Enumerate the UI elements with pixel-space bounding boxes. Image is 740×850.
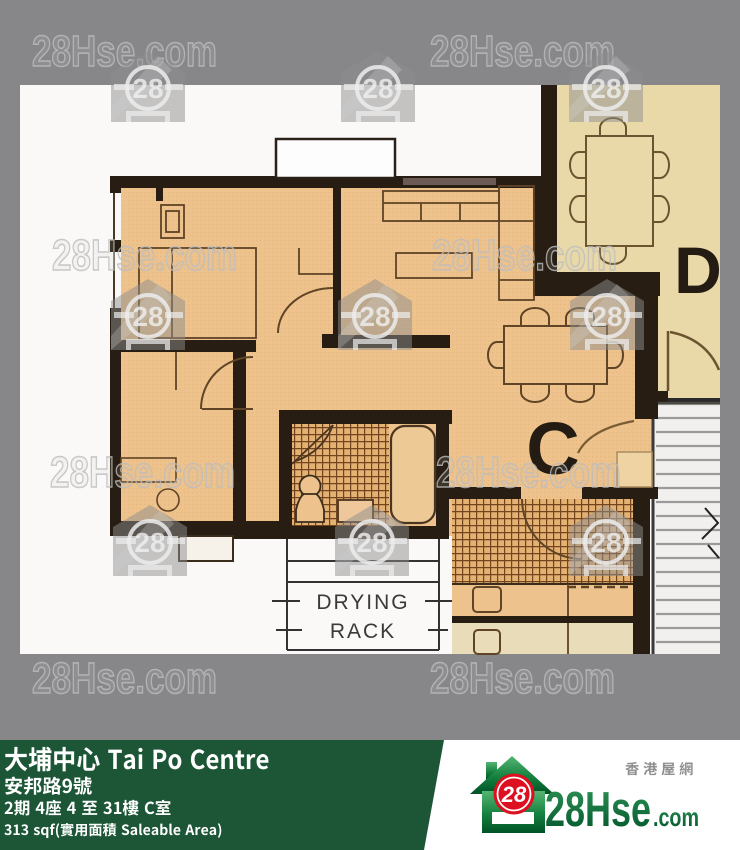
svg-text:28: 28 <box>362 73 393 104</box>
svg-text:28Hse.com: 28Hse.com <box>50 448 235 497</box>
svg-text:28Hse.com: 28Hse.com <box>436 448 621 497</box>
svg-text:28: 28 <box>134 527 165 558</box>
svg-text:28Hse.com: 28Hse.com <box>430 654 615 703</box>
svg-text:28: 28 <box>591 301 622 332</box>
svg-text:RACK: RACK <box>330 620 396 643</box>
svg-text:28: 28 <box>132 73 163 104</box>
svg-text:DRYING: DRYING <box>316 591 409 614</box>
svg-text:28: 28 <box>590 527 621 558</box>
svg-text:28: 28 <box>132 301 163 332</box>
svg-text:28Hse.com: 28Hse.com <box>432 231 617 280</box>
svg-text:.com: .com <box>653 802 699 832</box>
svg-text:28Hse.com: 28Hse.com <box>32 654 217 703</box>
svg-text:28: 28 <box>356 527 387 558</box>
svg-text:28: 28 <box>590 73 621 104</box>
svg-text:28: 28 <box>359 301 390 332</box>
svg-text:28: 28 <box>501 782 527 807</box>
svg-text:28Hse: 28Hse <box>545 783 651 837</box>
svg-text:D: D <box>674 233 722 307</box>
svg-text:28Hse.com: 28Hse.com <box>52 231 237 280</box>
